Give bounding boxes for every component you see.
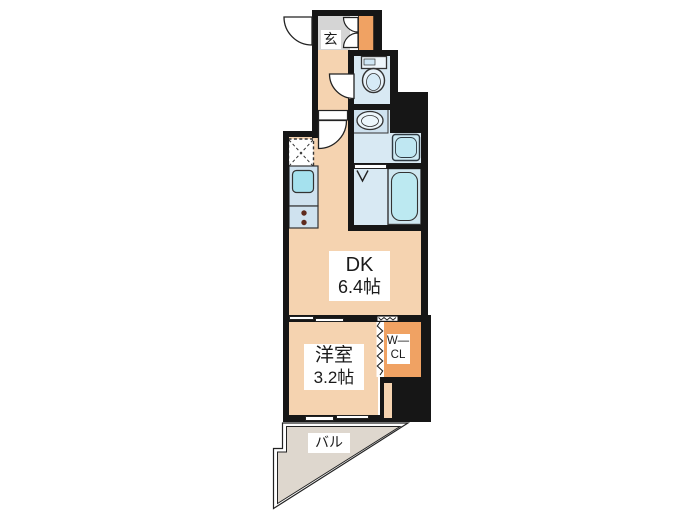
wcl-line1: W— [387, 335, 409, 349]
toilet-door-swing-icon [330, 74, 355, 99]
dk-name: DK [346, 253, 374, 277]
dk-door-leaf [319, 111, 348, 121]
floor-plan: 玄 DK 6.4帖 洋室 3.2帖 W— CL バル [0, 0, 700, 525]
walk-in-closet-label: W— CL [387, 334, 410, 364]
entrance-double-door-icon [344, 33, 359, 48]
wcl-line2: CL [391, 349, 406, 363]
dk-door-swing-icon [319, 121, 347, 149]
entrance-label: 玄 [321, 30, 341, 49]
balcony-label: バル [308, 433, 350, 453]
western-room-area: 3.2帖 [314, 368, 355, 388]
balcony-label-text: バル [315, 434, 343, 451]
dk-room-label: DK 6.4帖 [329, 251, 390, 301]
entrance-label-text: 玄 [324, 31, 338, 48]
dk-area: 6.4帖 [338, 277, 381, 299]
western-room-label: 洋室 3.2帖 [304, 344, 364, 390]
entry-door-swing-icon [284, 17, 312, 45]
western-room-name: 洋室 [315, 345, 353, 368]
entrance-double-door-icon [344, 18, 359, 33]
